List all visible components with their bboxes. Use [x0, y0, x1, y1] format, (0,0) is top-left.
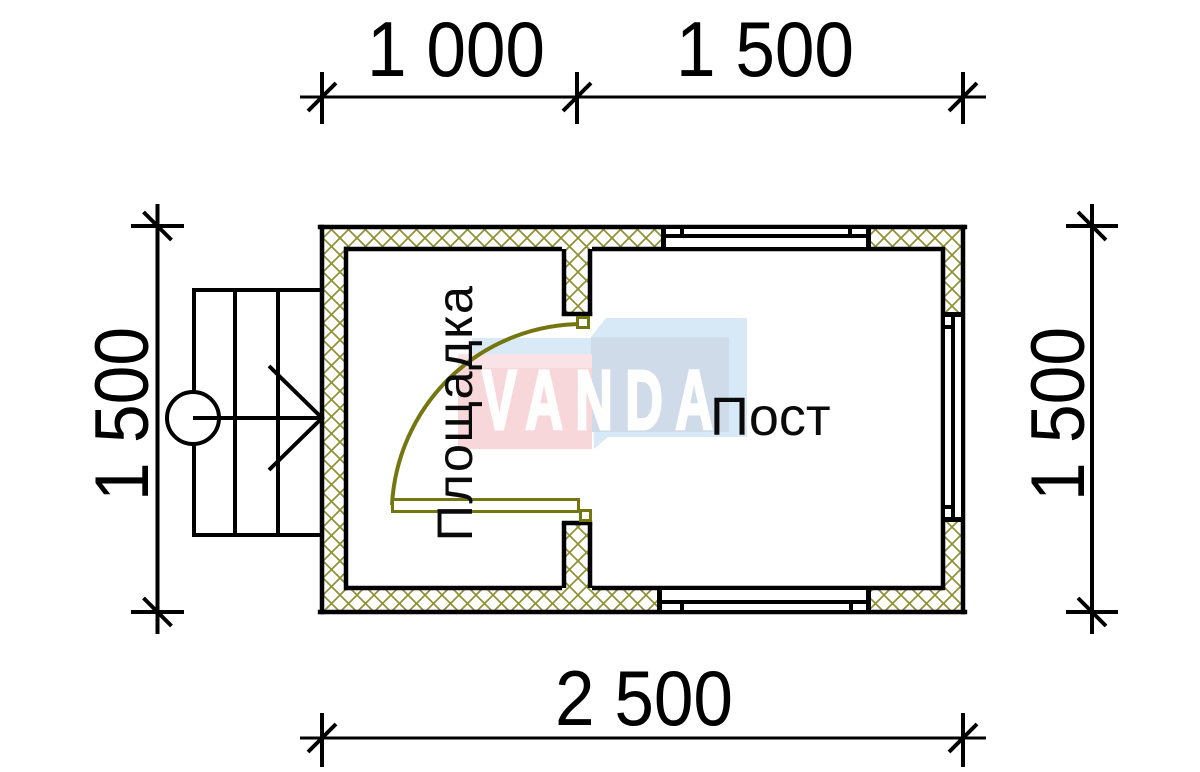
svg-text:2 500: 2 500	[555, 654, 733, 742]
svg-text:1 500: 1 500	[80, 327, 165, 501]
svg-text:1 000: 1 000	[367, 5, 545, 93]
svg-text:1 500: 1 500	[676, 5, 854, 93]
svg-text:VANDA: VANDA	[482, 353, 725, 447]
svg-text:Пост: Пост	[710, 387, 831, 447]
svg-text:Площадка: Площадка	[426, 285, 483, 542]
svg-text:1 500: 1 500	[1016, 327, 1101, 501]
